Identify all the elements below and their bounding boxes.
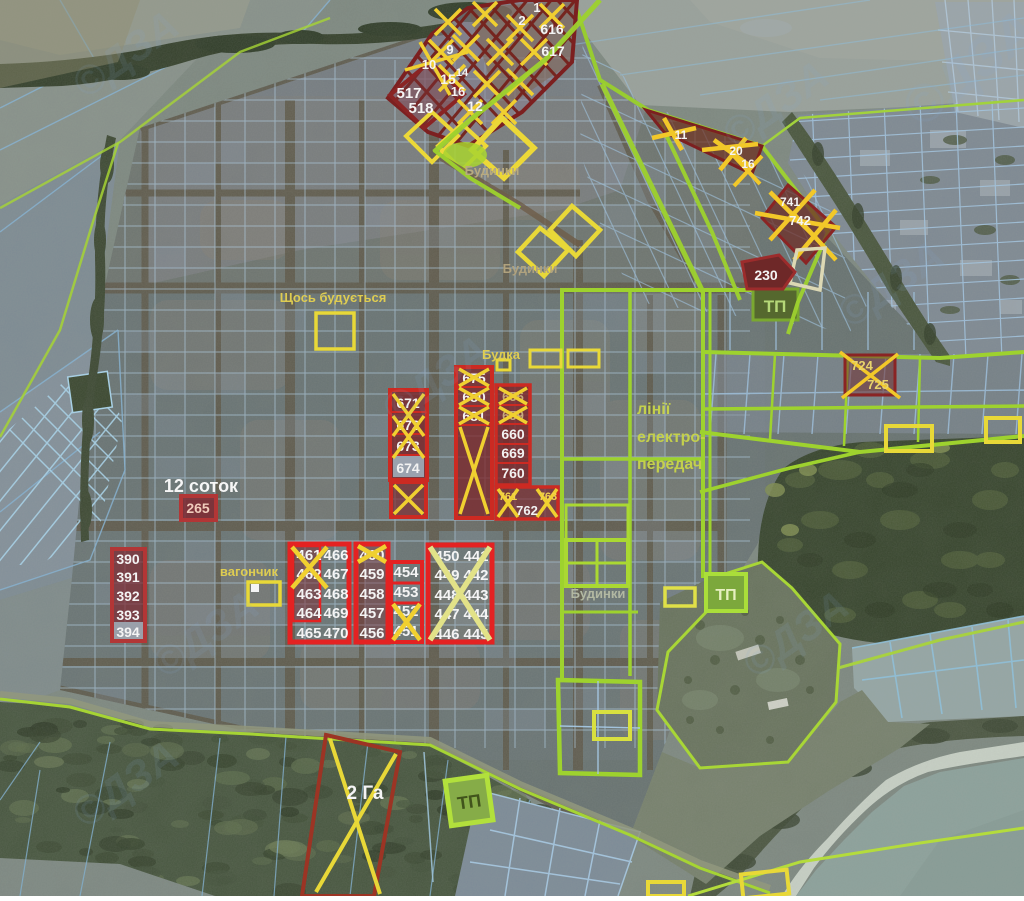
svg-text:741: 741 — [780, 195, 800, 209]
svg-text:761: 761 — [499, 491, 517, 503]
svg-text:391: 391 — [116, 569, 140, 585]
svg-text:725: 725 — [867, 377, 889, 392]
svg-text:14: 14 — [456, 67, 469, 79]
svg-text:390: 390 — [116, 551, 140, 567]
svg-text:465: 465 — [296, 625, 321, 642]
svg-text:760: 760 — [501, 465, 525, 481]
svg-text:12: 12 — [467, 98, 483, 114]
svg-text:Щось будується: Щось будується — [280, 290, 387, 305]
svg-text:265: 265 — [186, 500, 210, 516]
svg-text:459: 459 — [359, 566, 384, 583]
svg-text:Будинки: Будинки — [503, 261, 558, 276]
svg-text:16: 16 — [741, 157, 755, 171]
svg-text:2 Га: 2 Га — [347, 783, 384, 804]
svg-text:674: 674 — [396, 460, 420, 476]
svg-text:лінії: лінії — [637, 401, 671, 418]
svg-text:763: 763 — [539, 491, 557, 503]
svg-text:456: 456 — [359, 625, 384, 642]
svg-text:464: 464 — [296, 605, 322, 622]
svg-text:ТП: ТП — [456, 790, 482, 813]
svg-text:392: 392 — [116, 588, 140, 604]
svg-text:463: 463 — [296, 586, 321, 603]
svg-text:470: 470 — [323, 625, 348, 642]
svg-text:11: 11 — [675, 128, 688, 142]
svg-text:457: 457 — [359, 605, 384, 622]
svg-text:20: 20 — [729, 144, 743, 158]
svg-text:вагончик: вагончик — [220, 564, 279, 579]
svg-text:1: 1 — [533, 0, 540, 15]
svg-text:724: 724 — [851, 358, 873, 373]
svg-text:453: 453 — [393, 584, 418, 601]
svg-text:616: 616 — [540, 21, 564, 37]
svg-text:393: 393 — [116, 607, 140, 623]
svg-text:9: 9 — [446, 42, 453, 57]
svg-text:Будинки: Будинки — [571, 586, 626, 601]
svg-text:230: 230 — [754, 267, 778, 283]
svg-text:742: 742 — [789, 213, 811, 228]
svg-text:467: 467 — [323, 566, 348, 583]
svg-text:електро-: електро- — [637, 429, 705, 446]
svg-text:469: 469 — [323, 605, 348, 622]
svg-text:762: 762 — [516, 503, 538, 518]
svg-text:2: 2 — [518, 13, 525, 28]
svg-text:ТП: ТП — [715, 587, 736, 604]
svg-text:12 соток: 12 соток — [164, 476, 239, 496]
svg-text:передач: передач — [637, 456, 702, 473]
svg-text:458: 458 — [359, 586, 384, 603]
svg-text:468: 468 — [323, 586, 348, 603]
svg-text:ТП: ТП — [764, 297, 787, 316]
svg-text:669: 669 — [501, 445, 525, 461]
svg-text:Будка: Будка — [482, 347, 521, 362]
svg-text:518: 518 — [408, 100, 433, 117]
svg-text:617: 617 — [541, 43, 565, 59]
svg-text:660: 660 — [501, 426, 525, 442]
svg-text:16: 16 — [451, 84, 465, 99]
svg-text:394: 394 — [116, 624, 140, 640]
svg-text:Будинки: Будинки — [465, 163, 520, 178]
svg-text:10: 10 — [422, 57, 436, 72]
svg-text:454: 454 — [393, 564, 419, 581]
